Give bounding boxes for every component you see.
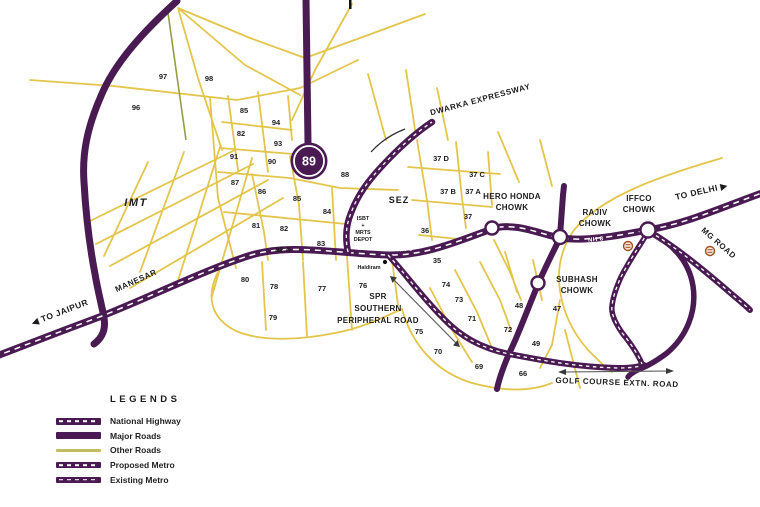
sector-label: 82	[237, 129, 245, 138]
metro-station-icon	[706, 247, 715, 256]
legend-rows: National HighwayMajor RoadsOther RoadsPr…	[56, 414, 181, 487]
sector-label: 73	[455, 295, 463, 304]
sector-label: 74	[442, 280, 451, 289]
sector-label: 70	[434, 347, 442, 356]
mg-road-metro	[650, 232, 750, 310]
sector-label: 93	[274, 139, 282, 148]
haldiram-dot	[383, 260, 387, 264]
legend-row: Existing Metro	[56, 472, 181, 487]
nh8-label: NH 8	[397, 247, 413, 254]
sector-label: 49	[532, 339, 540, 348]
road-label: DWARKA EXPRESSWAY	[429, 82, 531, 117]
sector-label: 37 D	[433, 154, 449, 163]
sector-label: 35	[433, 256, 441, 265]
sector-label: 78	[270, 282, 278, 291]
area-label-imt: IMT	[124, 197, 147, 209]
yellow-road-network-top	[30, 4, 448, 198]
gurgaon-sector-map: 89 979896859482939190888786858481828382 …	[0, 0, 760, 507]
sector-label: 71	[468, 314, 476, 323]
cropped-mark	[349, 0, 352, 9]
road-label: MG ROAD	[700, 226, 738, 261]
major-road-swatch	[56, 432, 101, 439]
sector-label: 96	[132, 103, 140, 112]
arrow-right-icon	[666, 368, 674, 374]
hero-honda-chowk-junction	[486, 222, 499, 235]
legend-label: Major Roads	[110, 431, 161, 441]
major-road-north-vertical	[306, 0, 308, 143]
legend-row: Major Roads	[56, 429, 181, 444]
sector-label: 87	[231, 178, 239, 187]
sector-label: 79	[269, 313, 277, 322]
sector-label: 91	[230, 152, 238, 161]
landmark-label: RAJIVCHOWK	[579, 208, 612, 228]
sector-label: 76	[359, 281, 367, 290]
iffco-chowk-junction	[641, 223, 656, 238]
sector-label: 72	[504, 325, 512, 334]
sector-label: 90	[268, 157, 276, 166]
sector-label: 48	[515, 301, 523, 310]
existing-metro-swatch	[56, 477, 101, 483]
sector-label: 94	[272, 118, 281, 127]
legend-row: Proposed Metro	[56, 458, 181, 473]
nh8-label: NH 8	[588, 236, 604, 244]
sector-label: 85	[293, 194, 301, 203]
badge-number: 89	[302, 155, 316, 169]
sector-label: 69	[475, 362, 483, 371]
metro-station-icon	[624, 242, 633, 251]
sector-label: 80	[241, 275, 249, 284]
sector-label: 36	[421, 226, 429, 235]
sector-label: 81	[252, 221, 260, 230]
sector-label: 84	[323, 207, 332, 216]
poi-labels-layer: Haldiram	[357, 265, 380, 271]
sector-label: 47	[553, 304, 561, 313]
landmark-label: IFFCOCHOWK	[623, 194, 656, 214]
sector-label: 88	[341, 170, 349, 179]
direction-label: TO DELHI ▶	[674, 180, 729, 202]
iffco-south-link-road	[612, 232, 648, 364]
proposed-metro-swatch	[56, 462, 101, 468]
sector-label: 83	[317, 239, 325, 248]
sector-label: 82 A	[275, 245, 291, 254]
sector-label: 98	[205, 74, 213, 83]
legend-label: Other Roads	[110, 445, 161, 455]
road-label: GOLF COURSE EXTN. ROAD	[555, 376, 679, 389]
area-label-sez: SEZ	[389, 195, 410, 205]
landmark-labels-layer: HERO HONDACHOWKRAJIVCHOWKIFFCOCHOWKSUBHA…	[337, 192, 655, 325]
green-road	[168, 13, 186, 140]
sector-label: 37 B	[440, 187, 456, 196]
landmark-label: SUBHASHCHOWK	[556, 275, 598, 295]
national-highway-swatch	[56, 418, 101, 425]
sector-label: 37 A	[465, 187, 481, 196]
legend-row: Other Roads	[56, 443, 181, 458]
major-road-subhash-south	[497, 238, 560, 389]
other-road-swatch	[56, 449, 101, 453]
sector-label: 37 C	[469, 170, 485, 179]
major-road-rajiv-north	[560, 186, 564, 236]
sector-label: 37	[464, 212, 472, 221]
sector-label: 86	[258, 187, 266, 196]
yellow-road-network-east	[402, 132, 722, 389]
legend-label: Existing Metro	[110, 475, 169, 485]
sector-label: 97	[159, 72, 167, 81]
subhash-chowk-junction	[532, 277, 545, 290]
legend-title: LEGENDS	[110, 394, 181, 405]
legend-row: National Highway	[56, 414, 181, 429]
arrow-left-icon	[558, 369, 566, 375]
sector-label: 82	[280, 224, 288, 233]
sector-89-badge: 89	[291, 143, 328, 180]
rajiv-chowk-junction	[553, 230, 567, 244]
road-label: MANESAR	[114, 268, 158, 294]
sector-label: 66	[519, 369, 527, 378]
legend: LEGENDS National HighwayMajor RoadsOther…	[56, 394, 181, 487]
sector-label: 77	[318, 284, 326, 293]
golf-course-extent-arrow	[564, 371, 668, 372]
highway-metro-layer	[0, 122, 760, 368]
poi-label: Haldiram	[357, 265, 380, 271]
sector-label: 75	[415, 327, 423, 336]
depot-label: ISBT+MRTSDEPOT	[354, 216, 373, 243]
nh8-highway	[0, 193, 760, 357]
legend-label: National Highway	[110, 416, 181, 426]
sector-label: 85	[240, 106, 248, 115]
legend-label: Proposed Metro	[110, 460, 175, 470]
southern-peripheral-road	[388, 255, 644, 368]
